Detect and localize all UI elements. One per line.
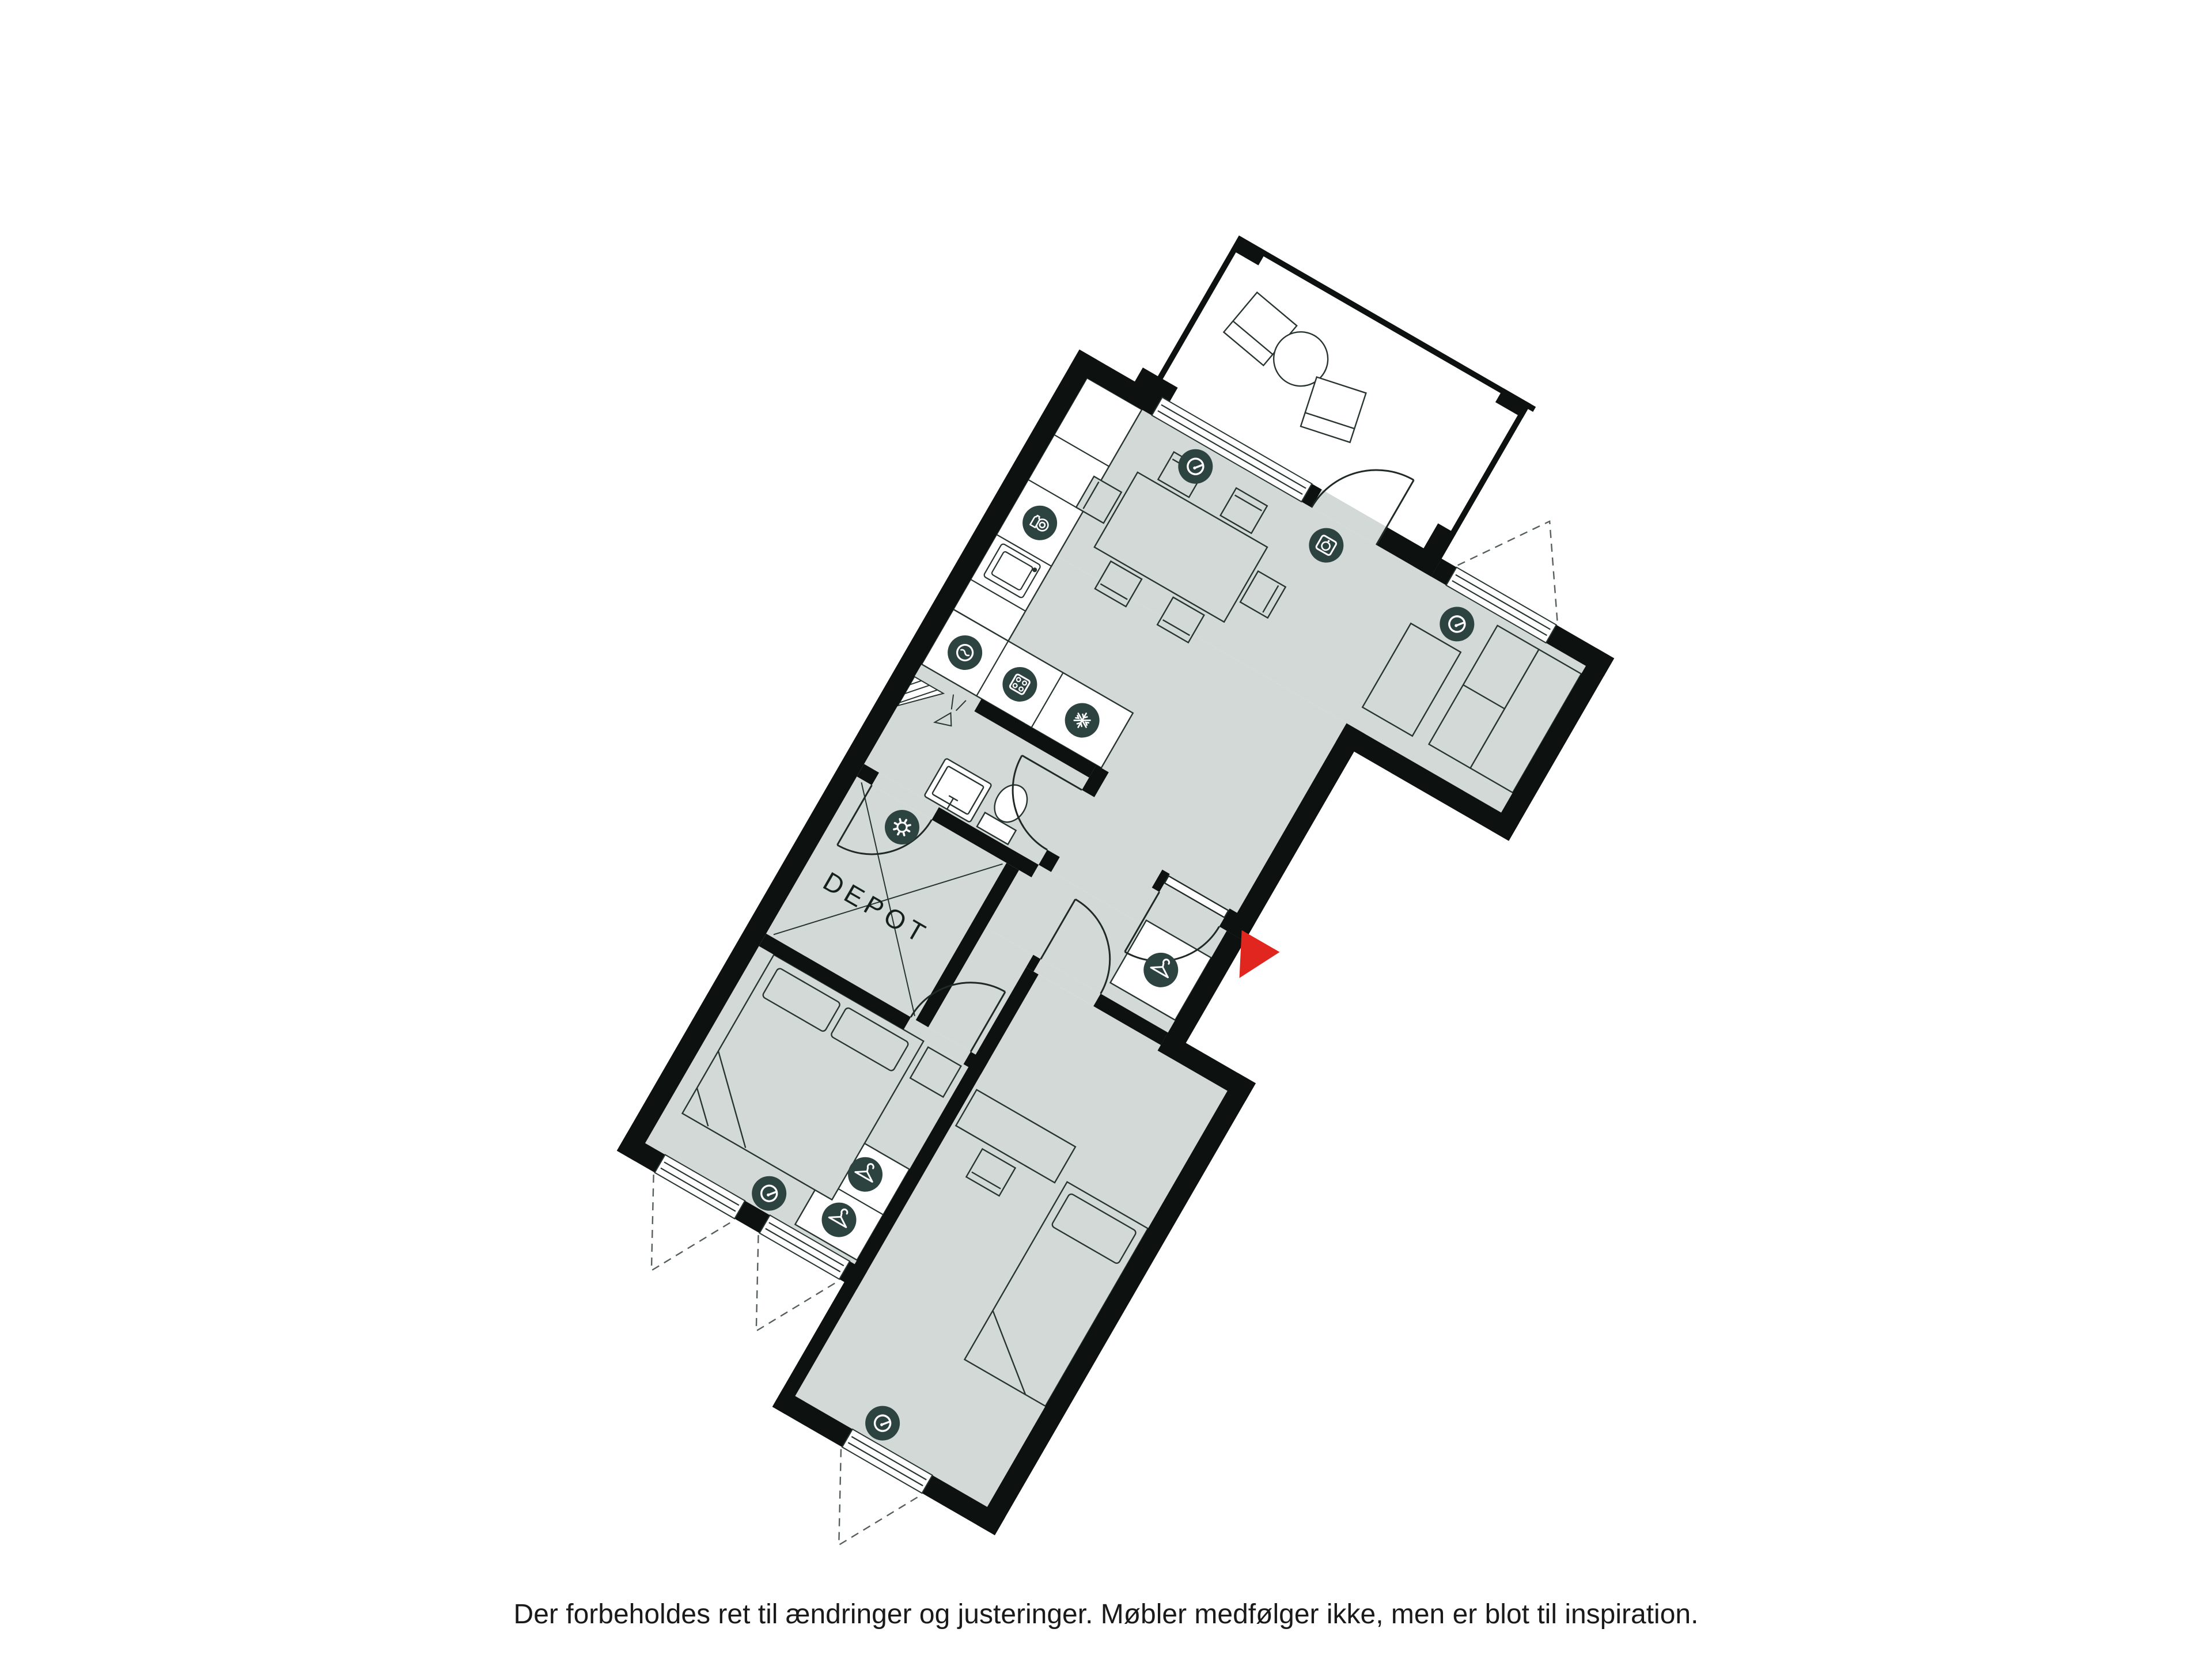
floor-plan: DEPOT [502, 195, 1703, 1659]
disclaimer-text: Der forbeholdes ret til ændringer og jus… [514, 1599, 1699, 1630]
floor-plan-page: DEPOT Der forbeholdes ret til ændringer … [0, 0, 2212, 1659]
floor-plan-canvas: DEPOT Der forbeholdes ret til ændringer … [0, 0, 2212, 1659]
